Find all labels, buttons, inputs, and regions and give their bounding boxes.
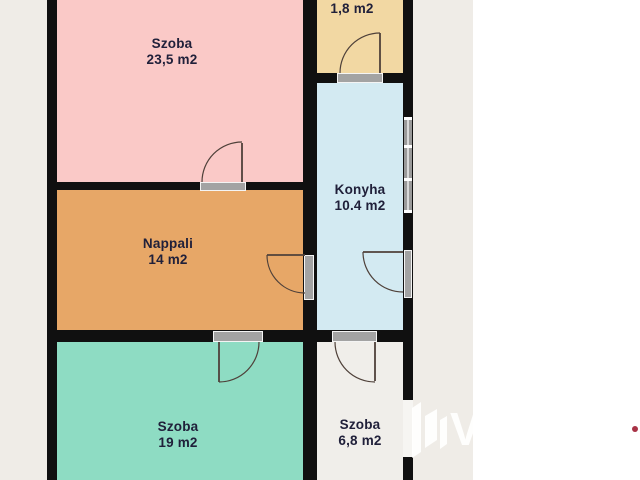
room-szoba-23-5 bbox=[57, 0, 303, 182]
room-name: Szoba bbox=[97, 36, 247, 52]
door-threshold-konyha-balcony bbox=[404, 250, 412, 298]
room-label-szoba-6-8: Szoba 6,8 m2 bbox=[317, 417, 403, 449]
room-name: Konyha bbox=[317, 182, 403, 198]
door-threshold-1-8 bbox=[337, 73, 383, 83]
room-area: 19 m2 bbox=[103, 435, 253, 451]
floorplan-canvas: V Szoba 23,5 m2 1,8 m2 Konyha 10.4 m2 Na… bbox=[0, 0, 640, 480]
door-threshold-szoba-6-8 bbox=[332, 331, 377, 342]
room-label-szoba-23-5: Szoba 23,5 m2 bbox=[97, 36, 247, 68]
room-area: 23,5 m2 bbox=[97, 52, 247, 68]
room-szoba-6-8 bbox=[317, 342, 403, 480]
window-pane bbox=[407, 117, 409, 213]
window-szoba-6-8-icon bbox=[403, 400, 413, 457]
room-area: 14 m2 bbox=[93, 252, 243, 268]
room-label-nappali: Nappali 14 m2 bbox=[93, 236, 243, 268]
window-konyha-icon bbox=[404, 117, 412, 213]
inner-wall-vertical bbox=[303, 0, 317, 480]
door-threshold-szoba-19 bbox=[213, 331, 263, 342]
window-tick bbox=[404, 178, 412, 181]
wall-szoba-nappali bbox=[47, 182, 317, 190]
window-tick bbox=[404, 117, 412, 120]
room-area: 10.4 m2 bbox=[317, 198, 403, 214]
room-area: 6,8 m2 bbox=[317, 433, 403, 449]
room-name: Nappali bbox=[93, 236, 243, 252]
door-threshold-nappali-konyha bbox=[304, 255, 314, 300]
room-label-szoba-19: Szoba 19 m2 bbox=[103, 419, 253, 451]
red-dot-icon bbox=[632, 426, 638, 432]
outer-wall-left bbox=[47, 0, 57, 480]
window-tick bbox=[404, 210, 412, 213]
room-szoba-19 bbox=[57, 342, 303, 480]
window-tick bbox=[404, 145, 412, 148]
room-label-konyha: Konyha 10.4 m2 bbox=[317, 182, 403, 214]
room-name: Szoba bbox=[103, 419, 253, 435]
room-name: Szoba bbox=[317, 417, 403, 433]
room-area: 1,8 m2 bbox=[311, 1, 393, 17]
room-label-1-8: 1,8 m2 bbox=[311, 1, 393, 17]
door-threshold-szoba-23-5 bbox=[200, 182, 246, 191]
